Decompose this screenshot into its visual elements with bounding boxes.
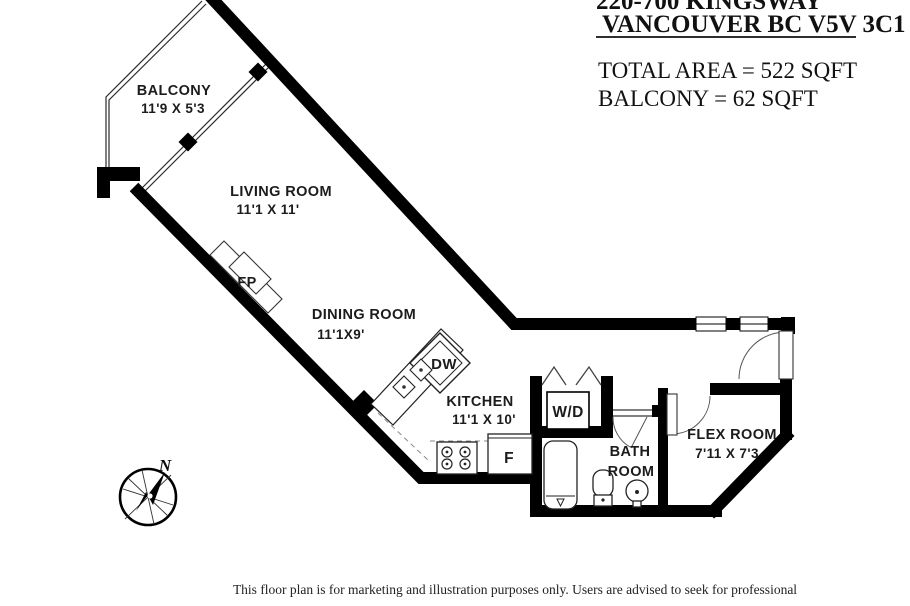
kitchen-label: KITCHEN	[446, 394, 513, 410]
fireplace-label: FP	[237, 275, 256, 291]
living-room-label: LIVING ROOM	[230, 184, 332, 200]
washer-dryer: W/D	[547, 392, 589, 429]
window	[740, 317, 768, 331]
balcony-label: BALCONY	[137, 83, 212, 99]
balcony-area-text: BALCONY = 62 SQFT	[598, 86, 818, 111]
dishwasher-label: DW	[431, 356, 457, 373]
floor-plan-svg: W/D DW	[0, 0, 910, 606]
kitchen-dims: 11'1 X 10'	[452, 412, 516, 427]
bath-room-label-2: ROOM	[608, 464, 655, 480]
disclaimer-text: This floor plan is for marketing and ill…	[233, 582, 797, 597]
total-area-text: TOTAL AREA = 522 SQFT	[598, 58, 857, 83]
floor-plan-page: W/D DW	[0, 0, 910, 606]
balcony-dims: 11'9 X 5'3	[141, 101, 205, 116]
stove	[437, 442, 477, 474]
address-line-2: VANCOUVER BC V5V 3C1	[602, 11, 906, 38]
bath-room-label-1: BATH	[610, 444, 651, 460]
fridge-label: F	[504, 450, 514, 467]
living-room-dims: 11'1 X 11'	[237, 202, 300, 217]
compass-north-label: N	[158, 456, 172, 475]
flex-room-dims: 7'11 X 7'3	[695, 446, 759, 461]
dining-room-label: DINING ROOM	[312, 307, 416, 323]
dining-room-dims: 11'1X9'	[317, 327, 365, 342]
window	[696, 317, 726, 331]
bathtub	[544, 441, 577, 509]
flex-room-label: FLEX ROOM	[687, 427, 777, 443]
washer-dryer-label: W/D	[552, 404, 583, 421]
fridge: F	[488, 434, 532, 474]
